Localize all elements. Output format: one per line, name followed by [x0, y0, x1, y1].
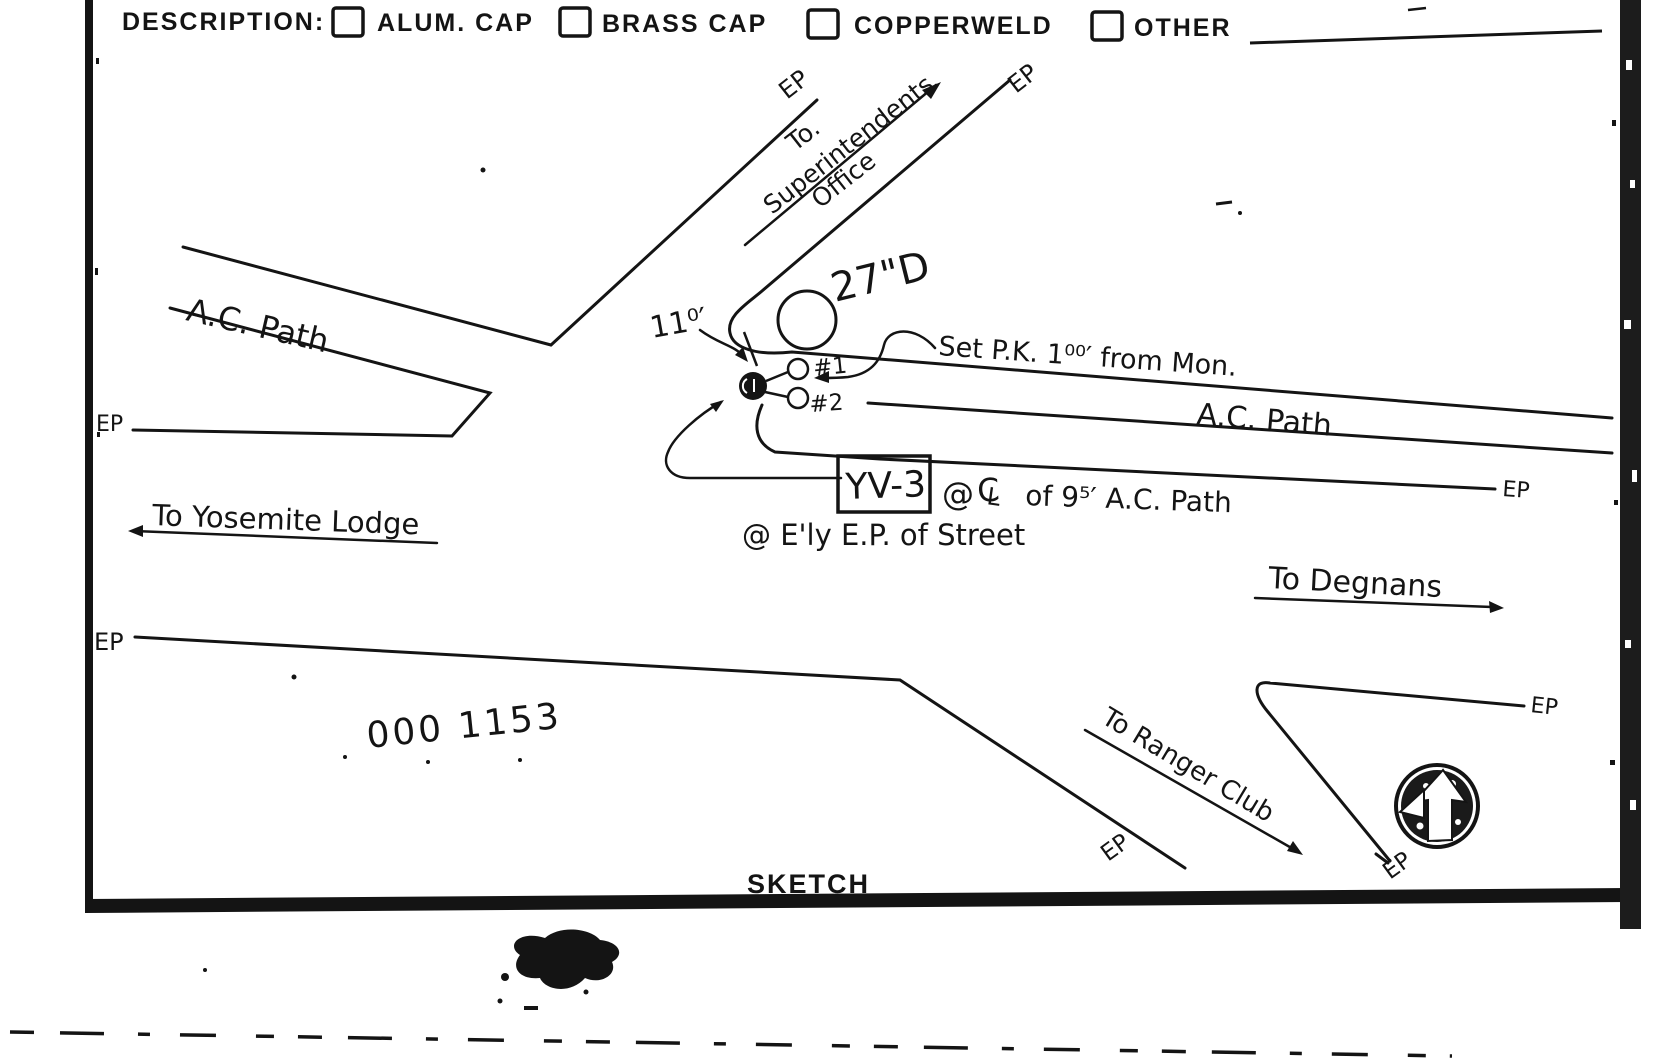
station-note-at: @: [942, 475, 974, 513]
road-hairpin: [1257, 683, 1524, 861]
witness-connector-2: [765, 392, 788, 397]
checkbox-label-alum-cap: ALUM. CAP: [377, 9, 534, 37]
checkbox-brass-cap[interactable]: [560, 8, 590, 36]
ep-label: EP: [773, 64, 814, 104]
witness-label-2: #2: [809, 390, 845, 418]
paper-specks: [292, 168, 1243, 765]
checkbox-alum-cap[interactable]: [333, 8, 363, 36]
ink-blot-shape: [514, 930, 619, 989]
ep-label: EP: [1502, 477, 1531, 504]
ink-speck: [524, 1006, 538, 1010]
witness-connector-1: [766, 372, 788, 381]
arrowhead: [1287, 841, 1303, 855]
arrowhead: [1489, 601, 1504, 613]
ink-speck: [584, 990, 589, 995]
checkbox-label-brass-cap: BRASS CAP: [602, 10, 767, 38]
station-note-rest: of 9⁵′ A.C. Path: [1025, 479, 1233, 519]
to-yosemite-lodge-label: To Yosemite Lodge: [151, 498, 420, 541]
checkbox-copperweld[interactable]: [808, 10, 838, 38]
description-label: DESCRIPTION:: [122, 8, 325, 36]
border-speck: [1614, 500, 1618, 505]
speck: [481, 168, 486, 173]
speck: [1216, 202, 1232, 204]
checkbox-label-other: OTHER: [1134, 14, 1232, 42]
to-ranger-club-label: To Ranger Club: [1096, 702, 1280, 829]
emblem-speck: [1455, 819, 1461, 825]
other-blank-line: [1250, 31, 1602, 43]
stray-mark: [1408, 8, 1426, 10]
speck: [292, 675, 297, 680]
witness-circle-2: [788, 388, 808, 408]
ep-label: EP: [1096, 829, 1134, 867]
border-speck: [1610, 760, 1615, 765]
border-speck: [1630, 180, 1635, 188]
tree-diameter-label: 27"D: [826, 243, 934, 312]
sketch-canvas: DESCRIPTION: ALUM. CAP BRASS CAP COPPERW…: [0, 0, 1680, 1064]
station-note-line2: @ E'ly E.P. of Street: [742, 518, 1025, 552]
checkbox-label-copperweld: COPPERWELD: [854, 12, 1053, 40]
ink-speck: [203, 968, 207, 972]
speck: [343, 755, 347, 759]
ep-label: EP: [94, 628, 124, 656]
street-bottom-edge: [135, 637, 1185, 868]
speck: [426, 760, 430, 764]
tree-circle: [778, 291, 836, 349]
scanned-survey-sketch: DESCRIPTION: ALUM. CAP BRASS CAP COPPERW…: [0, 0, 1680, 1064]
north-arrow-emblem: [1396, 765, 1478, 847]
offset-label: 11⁰′: [647, 301, 709, 345]
ac-path-right-label: A.C. Path: [1195, 397, 1333, 444]
speck: [518, 758, 522, 762]
ink-speck: [498, 999, 503, 1004]
ep-label: EP: [1529, 693, 1559, 721]
station-id-label: YV-3: [844, 464, 927, 508]
handwritten-number: 000 1153: [365, 696, 564, 757]
ac-path-left-label: A.C. Path: [183, 291, 332, 361]
description-header: DESCRIPTION: ALUM. CAP BRASS CAP COPPERW…: [122, 8, 1602, 43]
sketch-labels: EP EP To. Superintendents Office A.C. Pa…: [94, 58, 1559, 884]
border-speck: [1625, 640, 1631, 648]
torn-edge-dashes: [10, 1032, 1452, 1056]
border-speck: [1612, 120, 1616, 126]
speck: [1238, 211, 1242, 215]
ink-blot: [203, 930, 619, 1010]
ink-speck: [501, 973, 509, 981]
border-speck: [1630, 800, 1636, 810]
checkbox-other[interactable]: [1092, 12, 1122, 40]
border-speck: [1632, 470, 1637, 482]
ep-label: EP: [96, 412, 123, 437]
border-speck: [1624, 320, 1631, 329]
arrowhead: [710, 400, 724, 412]
sketch-title: SKETCH: [747, 869, 870, 899]
arrowhead: [128, 525, 143, 537]
left-border: [85, 0, 93, 906]
border-speck: [1626, 60, 1632, 70]
witness-circle-1: [788, 359, 808, 379]
emblem-speck: [1417, 823, 1424, 830]
ep-label: EP: [1002, 58, 1043, 98]
witness-label-1: #1: [812, 353, 848, 382]
border-speck: [96, 58, 99, 64]
right-border: [1620, 0, 1641, 929]
border-speck: [95, 268, 98, 275]
